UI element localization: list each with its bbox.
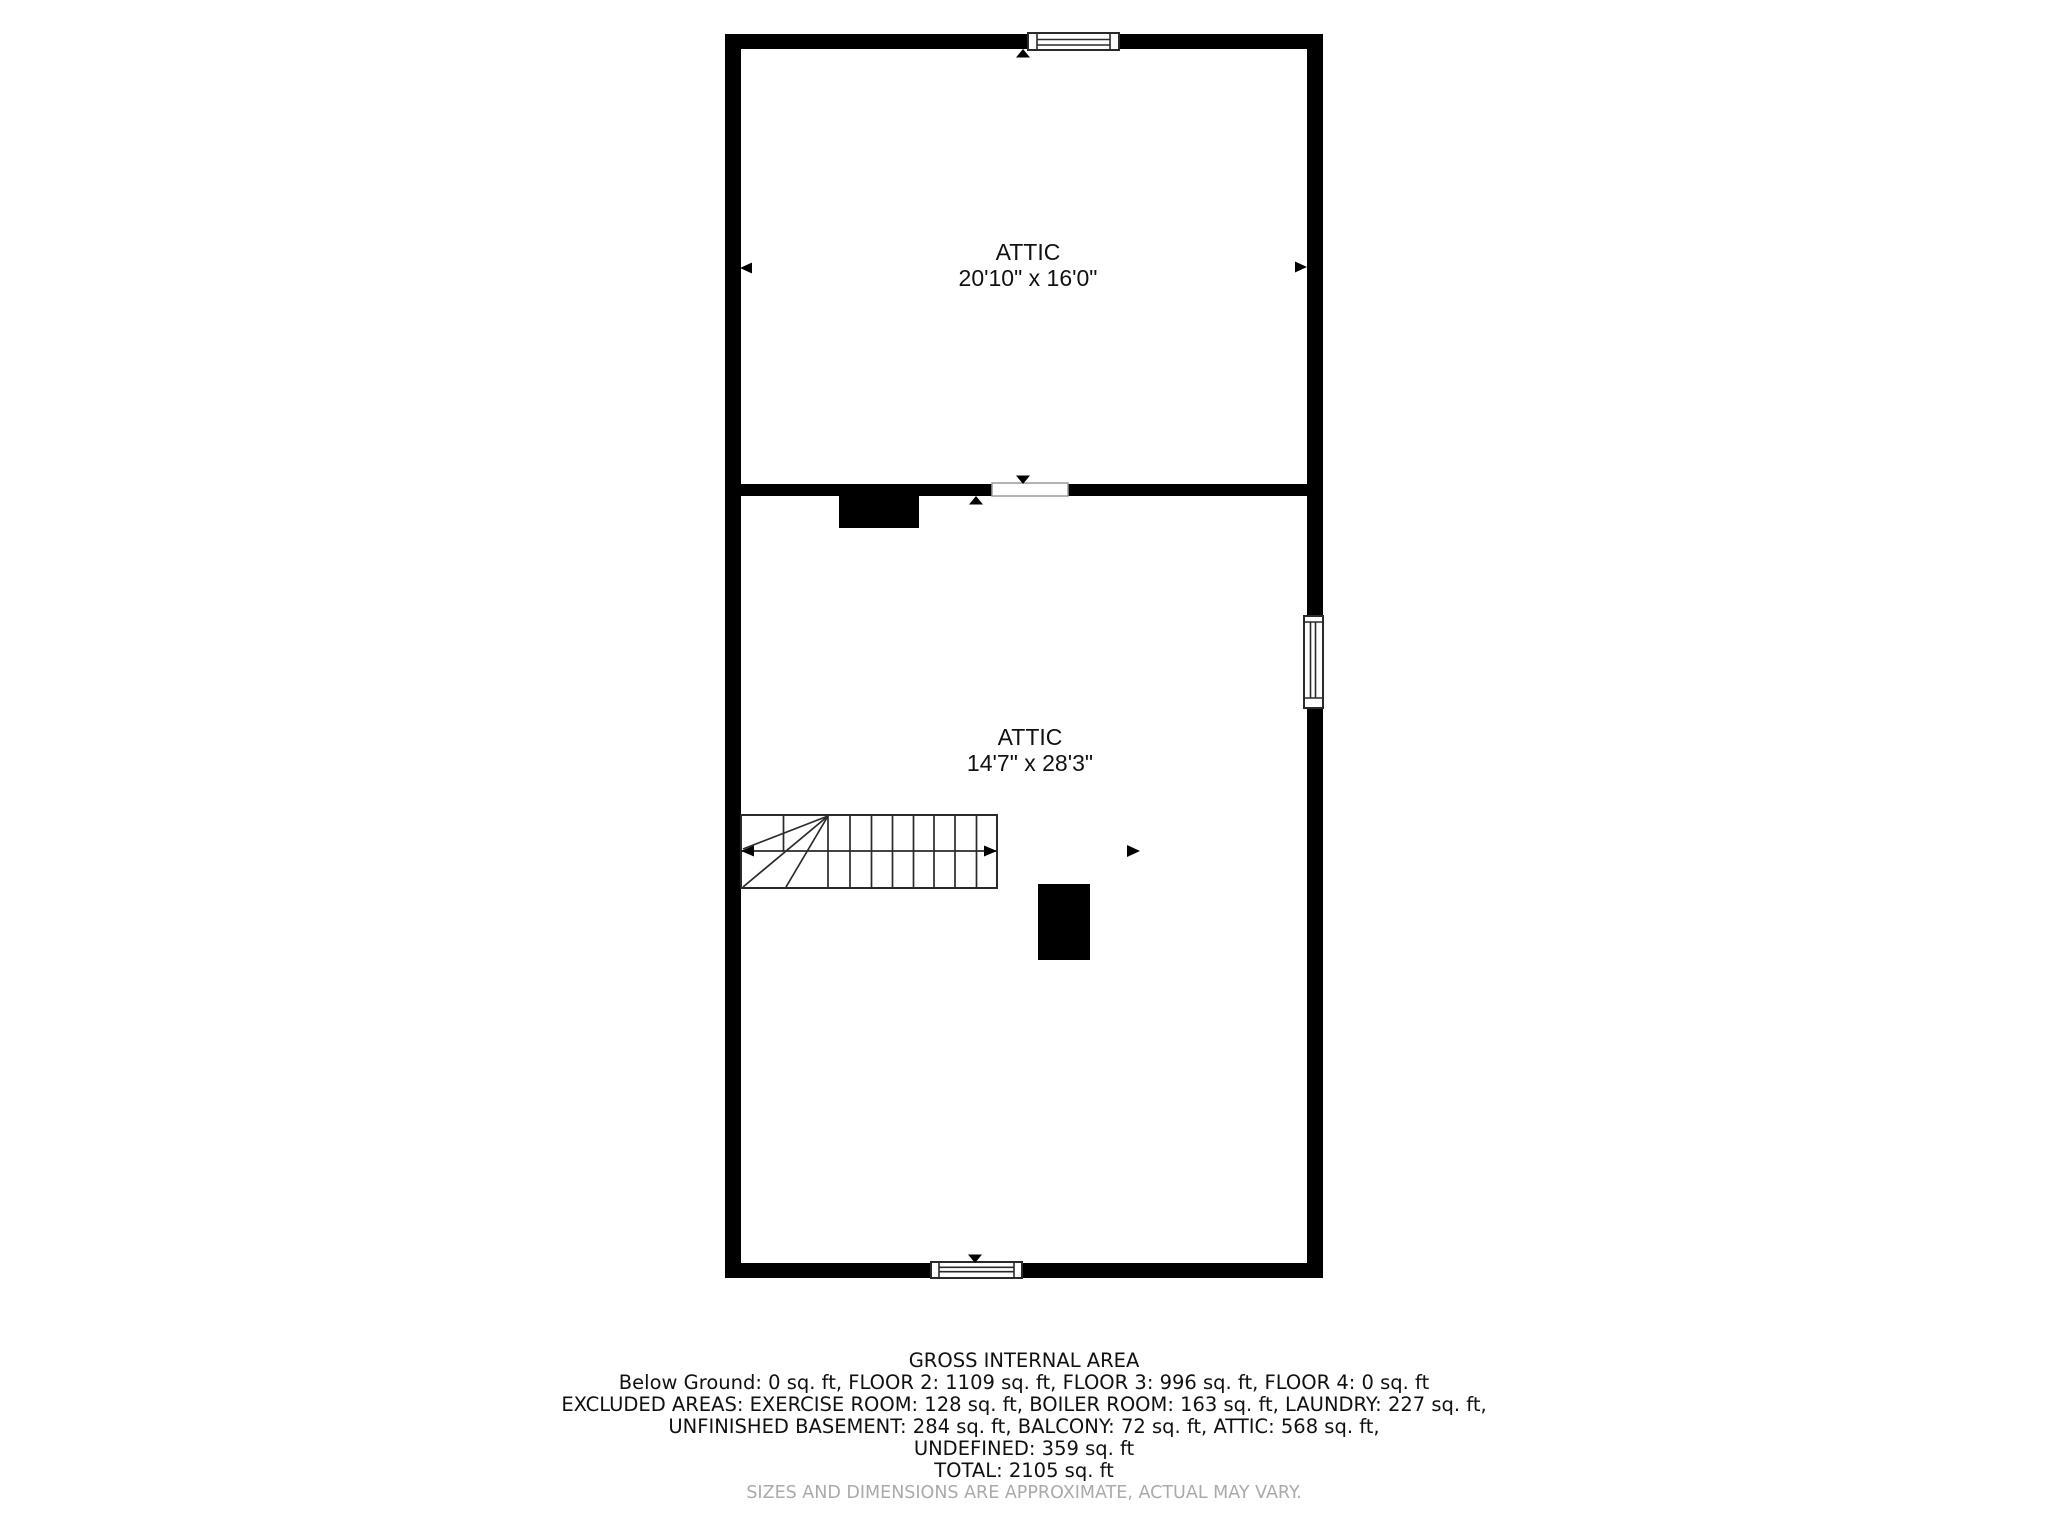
right-window: [1304, 616, 1323, 708]
summary-total: TOTAL: 2105 sq. ft: [0, 1460, 2048, 1482]
room-label-attic-upper: ATTIC 20'10" x 16'0": [959, 239, 1098, 291]
summary-title: GROSS INTERNAL AREA: [0, 1350, 2048, 1372]
summary-excluded-1: EXCLUDED AREAS: EXERCISE ROOM: 128 sq. f…: [0, 1394, 2048, 1416]
chimney-block-upper: [839, 484, 919, 528]
area-summary: GROSS INTERNAL AREA Below Ground: 0 sq. …: [0, 1350, 2048, 1504]
door-opening: [992, 483, 1068, 496]
staircase: [741, 815, 997, 888]
left-wall: [725, 34, 741, 1278]
floor-plan-page: ATTIC 20'10" x 16'0" ATTIC 14'7" x 28'3"…: [0, 0, 2048, 1536]
room-name: ATTIC: [959, 239, 1098, 265]
summary-excluded-2: UNFINISHED BASEMENT: 284 sq. ft, BALCONY…: [0, 1416, 2048, 1438]
bottom-window: [931, 1262, 1022, 1278]
room-dimensions: 14'7" x 28'3": [967, 750, 1093, 776]
room-dimensions: 20'10" x 16'0": [959, 265, 1098, 291]
summary-undefined: UNDEFINED: 359 sq. ft: [0, 1438, 2048, 1460]
summary-disclaimer: SIZES AND DIMENSIONS ARE APPROXIMATE, AC…: [0, 1482, 2048, 1504]
chimney-block-lower: [1038, 884, 1090, 960]
room-label-attic-lower: ATTIC 14'7" x 28'3": [967, 724, 1093, 776]
top-window: [1028, 33, 1119, 50]
top-wall: [725, 34, 1323, 49]
walls: [725, 34, 1323, 1278]
bottom-wall: [725, 1263, 1323, 1278]
dim-arrow-right-icon: [1295, 262, 1307, 273]
room-name: ATTIC: [967, 724, 1093, 750]
dim-arrow-right-icon: [1127, 845, 1140, 857]
summary-floors: Below Ground: 0 sq. ft, FLOOR 2: 1109 sq…: [0, 1372, 2048, 1394]
dimension-markers: [740, 49, 1307, 1263]
dim-arrow-left-icon: [740, 263, 752, 274]
dim-arrow-up-icon: [969, 496, 983, 505]
